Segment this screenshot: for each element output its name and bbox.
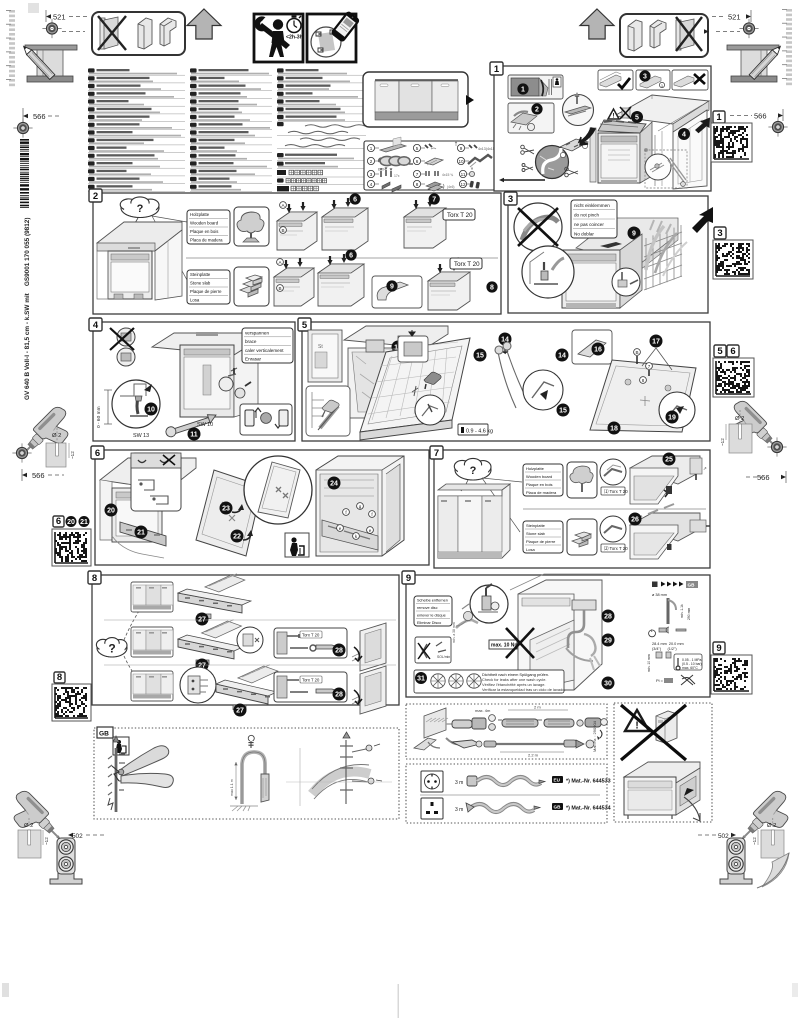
svg-text:Enrasar: Enrasar <box>245 357 262 362</box>
svg-text:*) Mat.-Nr. 644534: *) Mat.-Nr. 644534 <box>566 806 611 812</box>
svg-text:Eliminar Disco: Eliminar Disco <box>417 621 441 625</box>
svg-text:ø 38 mm: ø 38 mm <box>652 593 667 597</box>
svg-text:566: 566 <box>757 473 770 482</box>
svg-text:Stone slab: Stone slab <box>190 281 211 286</box>
svg-text:?: ? <box>137 203 144 215</box>
svg-text:10: 10 <box>147 407 155 414</box>
svg-text:502: 502 <box>718 833 729 840</box>
svg-text:15: 15 <box>559 408 567 415</box>
svg-text:GB: GB <box>688 583 696 588</box>
svg-text:8: 8 <box>416 182 419 187</box>
svg-text:17x: 17x <box>394 174 400 178</box>
svg-text:3: 3 <box>717 228 722 239</box>
svg-text:Ø 2: Ø 2 <box>24 823 33 829</box>
svg-text:e: e <box>339 526 342 531</box>
svg-text:9: 9 <box>390 284 394 291</box>
svg-text:Holzplatte: Holzplatte <box>526 466 545 471</box>
svg-text:Steinplatte: Steinplatte <box>526 523 546 528</box>
svg-text:25: 25 <box>665 457 673 464</box>
svg-text:Verificar la estanqueidad tras: Verificar la estanqueidad tras un ciclo … <box>482 687 565 692</box>
svg-text:8: 8 <box>92 573 97 584</box>
svg-text:Torx T 20: Torx T 20 <box>447 212 473 219</box>
svg-text:3: 3 <box>508 194 513 205</box>
svg-text:B: B <box>278 286 281 291</box>
svg-text:1: 1 <box>494 64 500 75</box>
svg-text:verspannen: verspannen <box>245 330 269 335</box>
svg-text:9: 9 <box>460 146 463 151</box>
svg-text:2 m: 2 m <box>534 705 541 710</box>
svg-text:3 m: 3 m <box>455 807 463 813</box>
svg-text:!: ! <box>635 721 638 732</box>
svg-text:enlever le disque: enlever le disque <box>417 613 446 617</box>
svg-text:2: 2 <box>93 191 98 202</box>
svg-text:2: 2 <box>535 107 539 114</box>
svg-text:max 1.1 m: max 1.1 m <box>230 779 234 796</box>
svg-text:16: 16 <box>594 347 602 354</box>
svg-text:9: 9 <box>716 643 721 654</box>
svg-text:521: 521 <box>728 13 741 22</box>
svg-text:4: 4 <box>682 132 686 139</box>
svg-text:Losa: Losa <box>190 298 200 303</box>
svg-text:7: 7 <box>648 364 651 369</box>
svg-text:1: 1 <box>716 112 722 123</box>
svg-text:max. 4m: max. 4m <box>475 708 491 713</box>
svg-text:14: 14 <box>558 353 566 360</box>
svg-text:GV 640 B Voll-I - 81,5 cm - k.: GV 640 B Voll-I - 81,5 cm - k.SW mit GS9… <box>24 218 31 400</box>
svg-text:Plaque de pierre: Plaque de pierre <box>190 289 222 294</box>
svg-text:Wooden board: Wooden board <box>190 221 219 226</box>
svg-text:Wooden board: Wooden board <box>526 474 552 479</box>
svg-text:No doblar: No doblar <box>574 231 594 236</box>
svg-text:~12: ~12 <box>70 451 75 459</box>
svg-text:Steinplatte: Steinplatte <box>190 272 211 277</box>
svg-text:0 - 60 mm: 0 - 60 mm <box>96 406 102 428</box>
svg-text:Ø 2: Ø 2 <box>767 823 776 829</box>
svg-text:ne pas coincer: ne pas coincer <box>574 222 604 227</box>
svg-text:!: ! <box>612 113 614 120</box>
svg-text:SW 13: SW 13 <box>133 433 149 439</box>
svg-text:Scheibe entfernen: Scheibe entfernen <box>417 598 448 602</box>
svg-text:6: 6 <box>416 159 419 164</box>
svg-text:6: 6 <box>56 516 61 527</box>
svg-text:<2h-3h: <2h-3h <box>286 35 303 41</box>
svg-text:18: 18 <box>610 426 618 433</box>
svg-text:566: 566 <box>33 112 46 121</box>
svg-text:↗: ↗ <box>703 466 707 471</box>
svg-text:Holzplatte: Holzplatte <box>190 212 210 217</box>
svg-text:3: 3 <box>643 74 647 81</box>
svg-text:max. 60°C: max. 60°C <box>682 666 698 670</box>
svg-text:Torx T 20: Torx T 20 <box>302 678 320 683</box>
svg-text:7: 7 <box>434 448 439 459</box>
svg-text:1: 1 <box>661 84 663 88</box>
svg-text:15: 15 <box>476 353 484 360</box>
svg-text:27: 27 <box>236 708 244 715</box>
svg-text:12: 12 <box>460 182 466 187</box>
svg-text:28.4 mm 20.0 mm: 28.4 mm 20.0 mm <box>652 642 684 646</box>
svg-text:8: 8 <box>57 672 62 683</box>
svg-text:1: 1 <box>370 146 373 151</box>
svg-text:11: 11 <box>190 432 198 439</box>
svg-text:min. a 38 mm: min. a 38 mm <box>452 622 456 643</box>
svg-text:Placa de madera: Placa de madera <box>526 490 557 495</box>
svg-text:⑵ Torx T 20: ⑵ Torx T 20 <box>604 545 628 552</box>
svg-text:4: 4 <box>93 320 99 331</box>
svg-text:Plaque en bois: Plaque en bois <box>526 482 552 487</box>
svg-text:Ø 2: Ø 2 <box>52 433 61 439</box>
svg-text:28: 28 <box>604 614 612 621</box>
svg-text:Mat.-Nr. : 290904: Mat.-Nr. : 290904 <box>592 720 597 752</box>
svg-text:St: St <box>318 344 323 350</box>
svg-text:caler verticalement: caler verticalement <box>245 348 284 353</box>
svg-text:2.2 m: 2.2 m <box>528 753 539 758</box>
svg-text:9: 9 <box>632 231 636 238</box>
svg-text:8: 8 <box>490 285 494 292</box>
svg-text:5: 5 <box>635 115 639 122</box>
svg-text:g: g <box>359 504 362 509</box>
svg-text:Placa de madera: Placa de madera <box>190 238 223 243</box>
svg-text:20: 20 <box>67 519 75 526</box>
svg-text:566: 566 <box>32 471 45 480</box>
svg-text:~12: ~12 <box>44 837 49 845</box>
svg-text:Stone slab: Stone slab <box>526 531 546 536</box>
svg-text:Losa: Losa <box>526 547 535 552</box>
svg-text:*) Mat.-Nr. 644533: *) Mat.-Nr. 644533 <box>566 779 611 785</box>
svg-text:521: 521 <box>53 13 66 22</box>
svg-text:Plaque en bois: Plaque en bois <box>190 229 218 234</box>
svg-text:6: 6 <box>349 253 353 260</box>
svg-text:nicht einklemmen: nicht einklemmen <box>574 203 610 208</box>
svg-text:6: 6 <box>730 346 735 357</box>
svg-text:566: 566 <box>754 112 767 121</box>
svg-text:21: 21 <box>80 519 88 526</box>
svg-text:E70+: E70+ <box>378 168 386 172</box>
svg-text:2: 2 <box>370 159 373 164</box>
svg-text:5: 5 <box>717 346 723 357</box>
svg-text:e: e <box>369 528 372 533</box>
svg-text:7: 7 <box>416 172 419 177</box>
svg-text:Plaque de pierre: Plaque de pierre <box>526 539 556 544</box>
svg-text:30: 30 <box>604 681 612 688</box>
svg-text:6: 6 <box>353 197 357 204</box>
svg-text:24: 24 <box>330 481 338 488</box>
svg-text:GB: GB <box>554 805 562 810</box>
svg-text:SW 10: SW 10 <box>197 422 213 428</box>
svg-text:B: B <box>281 228 284 233</box>
svg-text:GB: GB <box>99 731 109 738</box>
svg-text:4x13(4x15): 4x13(4x15) <box>478 147 496 151</box>
svg-text:⑴ Torx T 20: ⑴ Torx T 20 <box>604 488 628 495</box>
svg-text:(4x6): (4x6) <box>447 185 455 189</box>
svg-text:20: 20 <box>107 508 115 515</box>
svg-text:remove disc: remove disc <box>417 606 438 610</box>
svg-text:0.9 - 4.6 kg: 0.9 - 4.6 kg <box>466 429 493 435</box>
svg-text:11: 11 <box>461 172 466 177</box>
svg-text:4x15 ¾: 4x15 ¾ <box>442 173 453 177</box>
svg-text:Torx T 20: Torx T 20 <box>454 261 480 268</box>
svg-text:?: ? <box>470 465 477 477</box>
svg-text:do not pinch: do not pinch <box>574 212 599 217</box>
svg-text:3 m: 3 m <box>455 780 463 786</box>
svg-text:9: 9 <box>406 573 411 584</box>
svg-text:Pi =: Pi = <box>656 678 664 683</box>
svg-text:502: 502 <box>72 833 83 840</box>
svg-text:28: 28 <box>335 692 343 699</box>
svg-text:22: 22 <box>233 534 241 541</box>
svg-text:26: 26 <box>631 517 639 524</box>
svg-text:7: 7 <box>432 197 436 204</box>
svg-text:1: 1 <box>521 87 525 94</box>
svg-text:5: 5 <box>302 320 308 331</box>
svg-text:6: 6 <box>95 448 100 459</box>
svg-text:4: 4 <box>370 182 373 187</box>
svg-text:10: 10 <box>458 159 464 164</box>
svg-text:8: 8 <box>642 378 645 383</box>
svg-text:min. 1.1k: min. 1.1k <box>680 604 684 618</box>
svg-text:Torx T 20: Torx T 20 <box>302 633 320 638</box>
svg-text:brace: brace <box>245 339 257 344</box>
svg-text:SOL/min: SOL/min <box>437 655 450 659</box>
svg-text:29: 29 <box>604 638 612 645</box>
svg-text:31: 31 <box>417 676 425 683</box>
svg-text:~12: ~12 <box>752 837 757 845</box>
svg-text:EU: EU <box>554 778 561 783</box>
svg-text:B: B <box>635 350 638 355</box>
svg-text:21: 21 <box>137 530 145 537</box>
svg-text:17: 17 <box>652 339 660 346</box>
svg-text:min. 10 mm: min. 10 mm <box>647 654 651 672</box>
svg-text:Ø 2: Ø 2 <box>735 416 744 422</box>
svg-text:?: ? <box>108 642 115 656</box>
svg-text:~12: ~12 <box>720 438 725 446</box>
svg-text:5: 5 <box>416 146 419 151</box>
svg-text:3: 3 <box>370 172 373 177</box>
svg-text:(3/4") (1/2"): (3/4") (1/2") <box>652 647 677 651</box>
svg-text:23: 23 <box>222 506 230 513</box>
svg-text:1: 1 <box>651 629 653 633</box>
svg-text:290 mm: 290 mm <box>687 608 691 620</box>
svg-text:28: 28 <box>335 648 343 655</box>
svg-text:19: 19 <box>668 415 676 422</box>
